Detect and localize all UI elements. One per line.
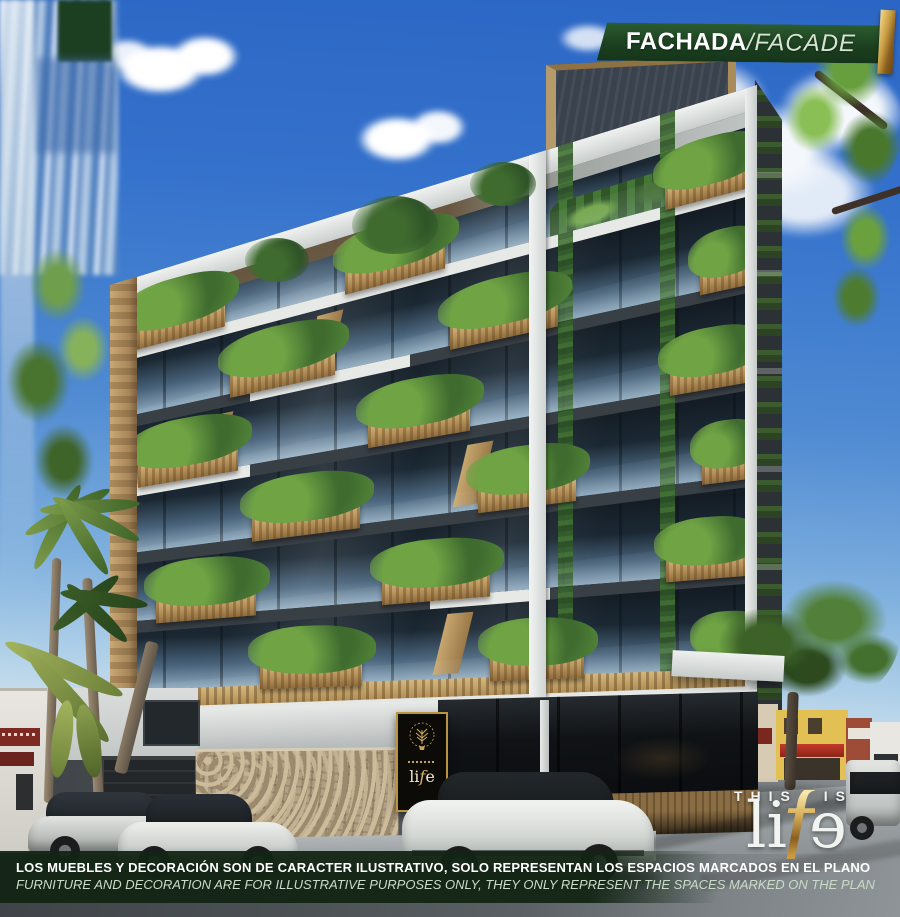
cloud bbox=[336, 96, 472, 174]
shop-sign bbox=[848, 728, 870, 739]
green-wall-strip bbox=[558, 142, 573, 244]
green-wall-strip bbox=[558, 319, 573, 419]
disclaimer-band: LOS MUEBLES Y DECORACIÓN SON DE CARACTER… bbox=[0, 851, 718, 903]
facade-render-page: life FACHADA/FACA bbox=[0, 0, 900, 917]
green-wall-strip bbox=[660, 391, 675, 491]
section-banner: FACHADA/FACADE bbox=[597, 22, 885, 63]
green-wall-strip bbox=[660, 204, 675, 305]
sign-small-text bbox=[408, 761, 436, 763]
roof-plant bbox=[245, 238, 309, 282]
roof-plant bbox=[352, 196, 438, 254]
tree-of-life-icon bbox=[407, 721, 437, 755]
disclaimer-line-es: LOS MUEBLES Y DECORACIÓN SON DE CARACTER… bbox=[16, 859, 718, 876]
banner-title-es: FACHADA bbox=[626, 28, 747, 57]
tree-canopy bbox=[0, 205, 128, 525]
tree-canopy bbox=[816, 178, 900, 348]
shop-sign bbox=[0, 752, 34, 766]
brand-e-reversed: e bbox=[809, 794, 847, 858]
shop-window bbox=[808, 718, 822, 734]
left-edge-artifact-green bbox=[58, 0, 112, 62]
wood-fin-panel bbox=[433, 612, 474, 675]
brand-logo: THIS IS life bbox=[724, 786, 894, 904]
banner-title-en: FACADE bbox=[754, 29, 856, 58]
shop-sign bbox=[0, 728, 40, 746]
cloud bbox=[100, 26, 250, 98]
brand-wordmark: life bbox=[746, 794, 847, 863]
side-window bbox=[143, 700, 200, 746]
shop-sign-text bbox=[2, 733, 36, 736]
disclaimer-line-en: FURNITURE AND DECORATION ARE FOR ILLUSTR… bbox=[16, 876, 718, 893]
left-edge-artifact-blue bbox=[36, 58, 116, 153]
roof-plant bbox=[470, 162, 536, 206]
green-wall-strip bbox=[558, 497, 573, 596]
